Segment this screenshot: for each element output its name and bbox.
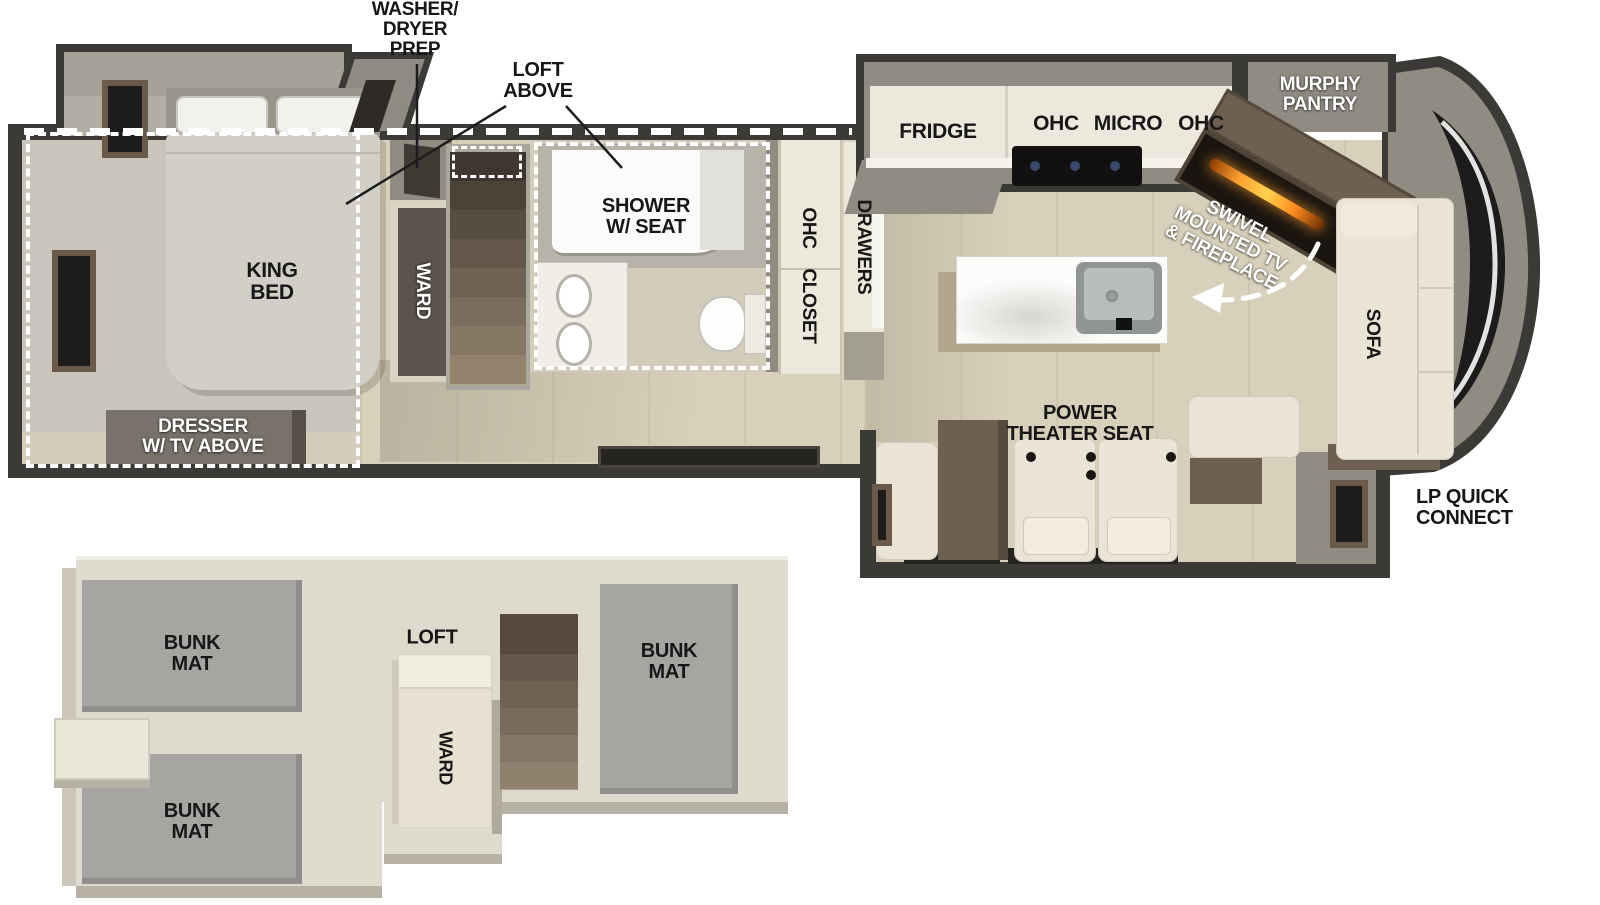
sink-basin: [1084, 268, 1154, 320]
loft-stair-step: [500, 681, 578, 709]
power-theater-seat-label: POWER THEATER SEAT: [1007, 403, 1154, 445]
staircase: [450, 152, 526, 384]
cupholder-icon: [1086, 452, 1096, 462]
washer-dryer-prep-label: WASHER/ DRYER PREP: [372, 0, 459, 60]
king-bed-label: KING BED: [246, 260, 297, 305]
sofa-cushion-line: [1417, 371, 1453, 373]
theater-slide-bottom-wall: [860, 562, 1390, 578]
sofa-label: SOFA: [1362, 309, 1382, 360]
bed-fold-line: [166, 152, 380, 154]
sink-drain-icon: [1106, 290, 1118, 302]
burner-icon: [1110, 161, 1120, 171]
shower-seat: [700, 150, 744, 250]
bathroom-right-wall: [766, 140, 778, 372]
loft-bottom-face-tab: [384, 854, 502, 864]
loft-stair-landing: [500, 614, 578, 654]
loft-step-box-shadow: [54, 780, 150, 788]
loft-above-label: LOFT ABOVE: [503, 60, 573, 102]
bunk-mat-right: [600, 584, 738, 794]
ohc-left-label: OHC: [1033, 113, 1079, 135]
bedroom-slide-window: [102, 80, 148, 158]
sink-faucet-icon: [1116, 318, 1132, 330]
label-line: W/ SEAT: [602, 217, 690, 238]
bedroom-wall-window: [52, 250, 96, 372]
cooktop: [1012, 146, 1142, 186]
micro-label: MICRO: [1094, 113, 1163, 135]
closet-label: CLOSET: [798, 268, 818, 343]
label-line: WASHER/: [372, 0, 459, 20]
stair-step: [450, 152, 526, 182]
label-line: MAT: [641, 662, 698, 683]
toilet-tank: [744, 294, 766, 354]
stair-step: [450, 210, 526, 240]
cupholder-icon: [1166, 452, 1176, 462]
counter-stub: [844, 332, 884, 380]
ward-label: WARD: [412, 263, 432, 320]
stair-step: [450, 239, 526, 269]
label-line: DRYER: [372, 20, 459, 40]
rv-floorplan-image: WASHER/ DRYER PREP LOFT ABOVE KING BED W…: [0, 0, 1600, 905]
stair-step: [450, 326, 526, 356]
sofa-cushion-line: [1417, 205, 1419, 455]
top-wall-dashed-line: [24, 128, 852, 135]
theater-corner-seat: [1188, 396, 1300, 458]
label-line: SHOWER: [602, 196, 690, 217]
drawers-label: DRAWERS: [853, 199, 873, 294]
sofa-armrest: [1341, 203, 1417, 237]
cupholder-icon: [1026, 452, 1036, 462]
label-line: W/ TV ABOVE: [142, 437, 264, 457]
label-line: THEATER SEAT: [1007, 424, 1154, 445]
label-line: DRESSER: [142, 417, 264, 437]
entry-door-mat: [598, 446, 820, 468]
ohc-label: OHC: [798, 207, 818, 248]
loft-stair-step: [500, 735, 578, 763]
bath-sink-2: [556, 322, 592, 366]
loft-stair-step: [500, 762, 578, 790]
label-line: CONNECT: [1416, 508, 1513, 529]
shower-label: SHOWER W/ SEAT: [602, 196, 690, 238]
loft-bottom-face-left: [76, 886, 382, 898]
label-line: KING: [246, 260, 297, 282]
stair-step: [450, 355, 526, 385]
sofa: [1336, 198, 1454, 460]
dresser-label: DRESSER W/ TV ABOVE: [142, 417, 264, 457]
label-line: MAT: [164, 822, 221, 843]
label-line: ABOVE: [503, 81, 573, 102]
loft-staircase: [500, 654, 578, 789]
loft-ward-top: [398, 654, 492, 688]
door-side-window: [1330, 480, 1368, 548]
stair-step: [450, 268, 526, 298]
loft-stair-step: [500, 708, 578, 736]
island-sink: [1076, 262, 1162, 334]
label-line: BUNK: [164, 633, 221, 654]
rear-wall: [8, 124, 22, 478]
theater-corner-base: [1190, 458, 1262, 504]
cupholder-icon: [1086, 470, 1096, 480]
theater-console-table: [938, 420, 1008, 560]
bunk-mat-right-label: BUNK MAT: [641, 641, 698, 683]
loft-stair-step: [500, 654, 578, 682]
toilet-bowl: [698, 296, 746, 352]
loft-step-box: [54, 718, 150, 780]
washer-door: [404, 143, 440, 198]
label-line: PANTRY: [1280, 95, 1361, 115]
label-line: PREP: [372, 40, 459, 60]
burner-icon: [1070, 161, 1080, 171]
seat-cushion: [1023, 517, 1089, 555]
burner-icon: [1030, 161, 1040, 171]
lp-quick-connect-label: LP QUICK CONNECT: [1416, 487, 1513, 529]
loft-bottom-face-right: [502, 802, 788, 814]
murphy-pantry-label: MURPHY PANTRY: [1280, 75, 1361, 115]
seat-cushion: [1107, 517, 1171, 555]
bath-sink-1: [556, 274, 592, 318]
label-line: BED: [246, 282, 297, 304]
stair-step: [450, 181, 526, 211]
label-line: MAT: [164, 654, 221, 675]
label-line: LOFT: [503, 60, 573, 81]
label-line: MURPHY: [1280, 75, 1361, 95]
fridge-label: FRIDGE: [899, 121, 977, 143]
label-line: POWER: [1007, 403, 1154, 424]
ohc-right-label: OHC: [1178, 113, 1224, 135]
label-line: BUNK: [641, 641, 698, 662]
bunk-mat-top-label: BUNK MAT: [164, 633, 221, 675]
label-line: LP QUICK: [1416, 487, 1513, 508]
loft-ward-label: WARD: [435, 731, 454, 785]
loft-label: LOFT: [406, 627, 457, 648]
label-line: BUNK: [164, 801, 221, 822]
bunk-mat-bottom-label: BUNK MAT: [164, 801, 221, 843]
sofa-cushion-line: [1417, 287, 1453, 289]
stair-step: [450, 297, 526, 327]
slide-end-window: [872, 484, 892, 546]
